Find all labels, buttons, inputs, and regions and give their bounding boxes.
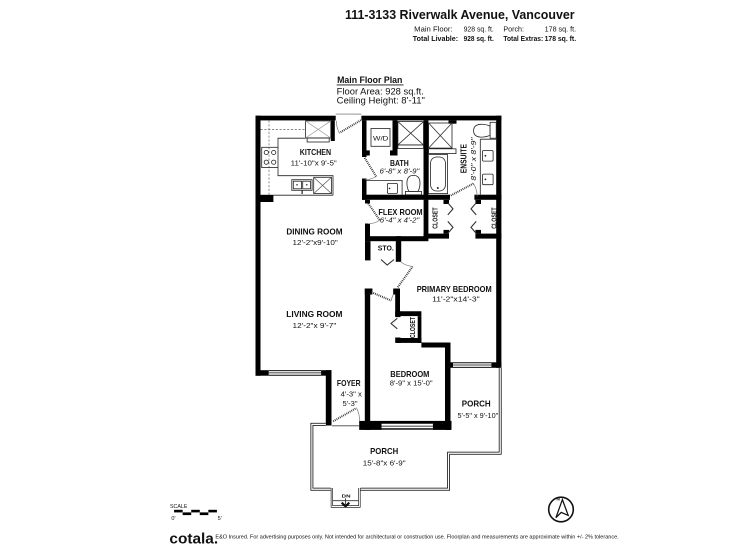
svg-text:Total Livable:: Total Livable:: [413, 36, 458, 43]
svg-text:SCALE: SCALE: [170, 504, 188, 510]
svg-text:PORCH: PORCH: [462, 398, 491, 408]
svg-text:FOYER: FOYER: [337, 378, 361, 388]
svg-text:11'-2"x14'-3": 11'-2"x14'-3": [432, 295, 480, 304]
svg-text:PORCH: PORCH: [370, 446, 398, 456]
svg-text:CLOSET: CLOSET: [431, 207, 440, 229]
svg-text:Ceiling Height: 8'-11": Ceiling Height: 8'-11": [337, 96, 425, 106]
svg-text:Main Floor:: Main Floor:: [414, 27, 452, 34]
svg-text:0': 0': [171, 516, 175, 522]
svg-text:111-3133 Riverwalk Avenue, Van: 111-3133 Riverwalk Avenue, Vancouver: [345, 8, 575, 22]
svg-text:8'-9" x 15'-0": 8'-9" x 15'-0": [390, 379, 433, 388]
svg-text:CLOSET: CLOSET: [489, 207, 498, 229]
svg-text:ENSUITE: ENSUITE: [459, 144, 469, 174]
svg-text:BEDROOM: BEDROOM: [390, 369, 429, 379]
svg-text:5'-5" x 9'-10": 5'-5" x 9'-10": [458, 411, 499, 420]
svg-text:5'-3": 5'-3": [343, 399, 358, 408]
svg-text:4'-3" x: 4'-3" x: [341, 389, 363, 398]
svg-text:W/D: W/D: [373, 136, 388, 143]
svg-text:LIVING ROOM: LIVING ROOM: [286, 309, 342, 319]
svg-text:6'-8" x 8'-9": 6'-8" x 8'-9": [380, 167, 420, 176]
svg-text:cotala.: cotala.: [169, 531, 218, 547]
svg-text:Porch:: Porch:: [503, 27, 524, 34]
svg-text:E&O Insured. For advertising p: E&O Insured. For advertising purposes on…: [215, 535, 619, 541]
svg-text:178 sq. ft.: 178 sq. ft.: [545, 36, 577, 43]
svg-text:CLOSET: CLOSET: [408, 317, 417, 338]
svg-text:5': 5': [218, 516, 222, 522]
svg-text:DN: DN: [342, 494, 352, 500]
svg-text:12'-2"x9'-10": 12'-2"x9'-10": [293, 238, 339, 247]
svg-text:PRIMARY BEDROOM: PRIMARY BEDROOM: [417, 284, 492, 294]
svg-text:STO.: STO.: [378, 245, 394, 252]
svg-text:DINING ROOM: DINING ROOM: [286, 226, 342, 236]
svg-text:928 sq. ft.: 928 sq. ft.: [464, 27, 494, 34]
svg-text:8'-0" x 8'-9": 8'-0" x 8'-9": [469, 137, 478, 180]
svg-text:12'-2"x 9'-7": 12'-2"x 9'-7": [293, 321, 337, 330]
svg-text:15'-8"x 6'-9": 15'-8"x 6'-9": [363, 459, 406, 468]
svg-text:Total Extras:: Total Extras:: [503, 36, 543, 43]
svg-text:178 sq. ft.: 178 sq. ft.: [545, 27, 577, 34]
svg-text:KITCHEN: KITCHEN: [300, 147, 331, 157]
svg-text:Main Floor Plan: Main Floor Plan: [337, 75, 402, 85]
svg-text:6'-4" x 4'-2": 6'-4" x 4'-2": [380, 215, 420, 224]
svg-text:11'-10"x 9'-5": 11'-10"x 9'-5": [291, 158, 337, 167]
svg-text:928 sq. ft.: 928 sq. ft.: [464, 36, 494, 43]
